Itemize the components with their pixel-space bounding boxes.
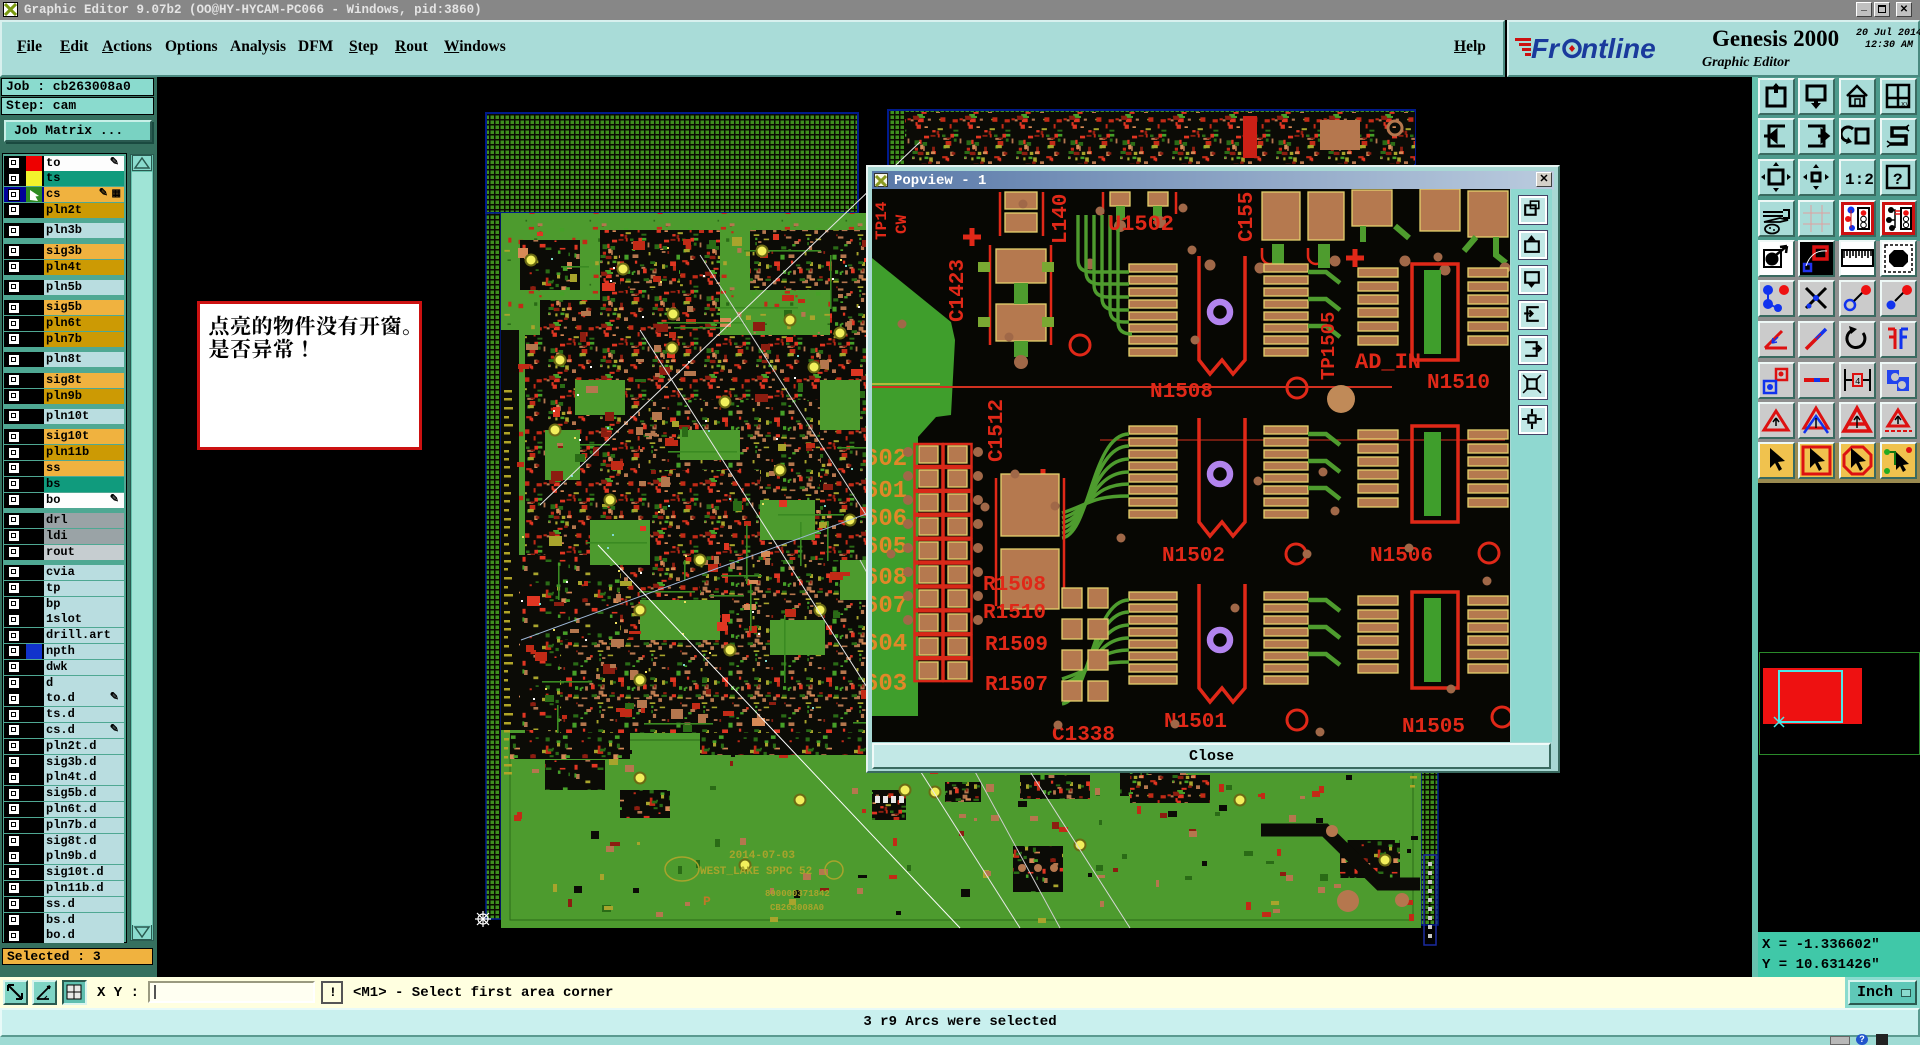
- svg-text:607: 607: [864, 593, 907, 620]
- svg-text:L140: L140: [1050, 194, 1073, 244]
- svg-text:C155: C155: [1236, 192, 1259, 242]
- svg-text:605: 605: [864, 534, 907, 561]
- svg-text:N1508: N1508: [1150, 381, 1213, 404]
- svg-text:CW: CW: [893, 214, 911, 234]
- svg-text:xy: xy: [1901, 101, 1909, 109]
- svg-text:R1509: R1509: [985, 634, 1048, 657]
- svg-text:606: 606: [864, 506, 907, 533]
- svg-text:N1510: N1510: [1427, 372, 1490, 395]
- svg-text:R1508: R1508: [983, 574, 1046, 597]
- svg-text:N1506: N1506: [1370, 545, 1433, 568]
- svg-text:AD_IN: AD_IN: [1355, 350, 1421, 375]
- svg-text:TP1505: TP1505: [1318, 312, 1340, 380]
- svg-text:601: 601: [864, 478, 907, 505]
- svg-text:602: 602: [864, 446, 907, 473]
- svg-text:603: 603: [864, 671, 907, 698]
- svg-text:C1512: C1512: [986, 399, 1009, 462]
- svg-text:604: 604: [864, 631, 907, 658]
- svg-text:C1423: C1423: [947, 259, 970, 322]
- svg-text:1:2: 1:2: [1845, 171, 1874, 189]
- svg-text:TP14: TP14: [873, 201, 891, 240]
- svg-text:N1505: N1505: [1402, 716, 1465, 739]
- svg-text:R1507: R1507: [985, 674, 1048, 697]
- svg-text:U1502: U1502: [1108, 212, 1174, 237]
- svg-text:4: 4: [1855, 377, 1860, 387]
- svg-text:N1502: N1502: [1162, 545, 1225, 568]
- svg-text:R1510: R1510: [983, 602, 1046, 625]
- svg-text:?: ?: [1893, 171, 1903, 189]
- svg-text:608: 608: [864, 565, 907, 592]
